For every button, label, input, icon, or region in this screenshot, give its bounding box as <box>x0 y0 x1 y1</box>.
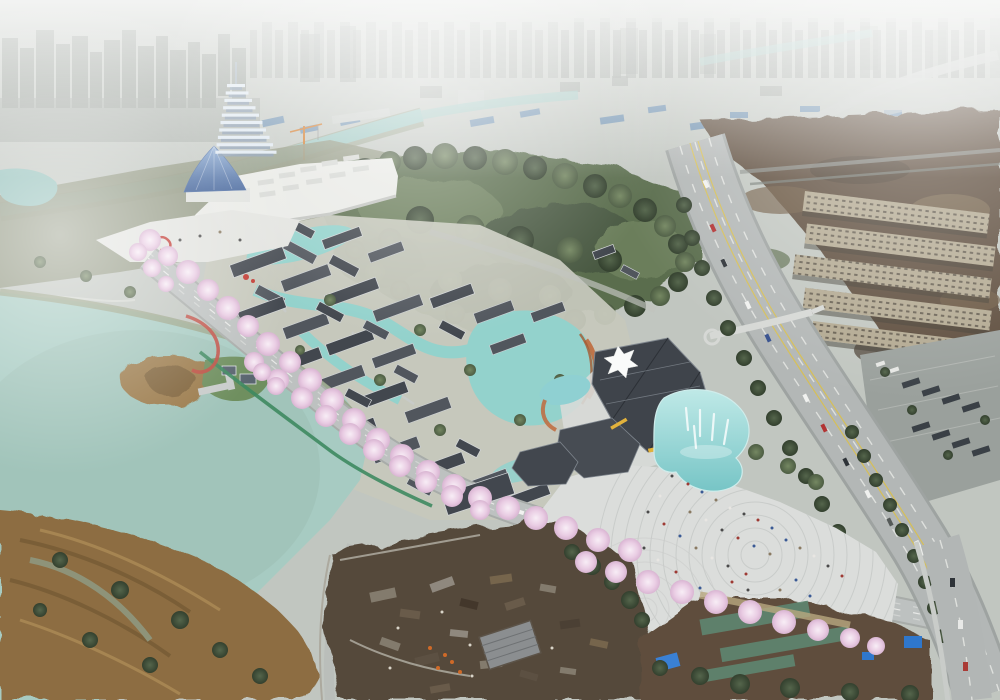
aerial-rendering <box>0 0 1000 700</box>
scene-canvas <box>0 0 1000 700</box>
